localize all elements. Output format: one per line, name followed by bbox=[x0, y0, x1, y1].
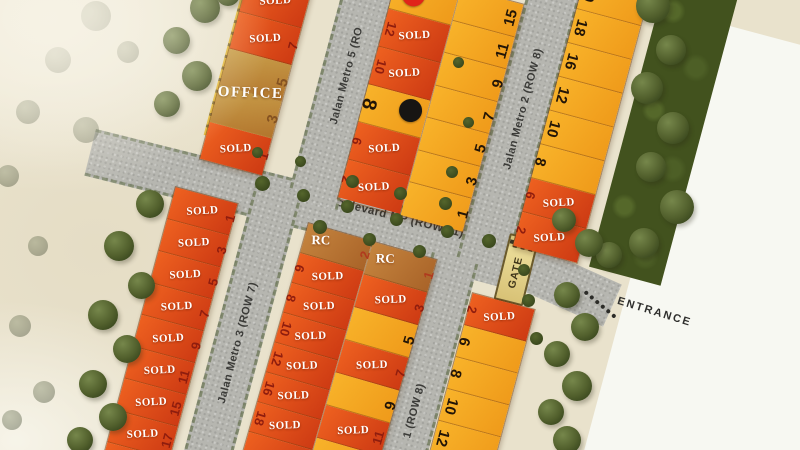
tree bbox=[553, 426, 581, 450]
lot-number: 10 bbox=[442, 396, 461, 416]
sold-label: SOLD bbox=[286, 359, 318, 372]
tree bbox=[575, 229, 603, 257]
lot-number: 9 bbox=[382, 399, 399, 411]
sold-label: SOLD bbox=[368, 142, 401, 156]
lot-number: 1 bbox=[455, 208, 472, 220]
lot-number: 15 bbox=[167, 400, 183, 417]
bush bbox=[453, 57, 464, 68]
street-label-metro-3: Jalan Metro 3 (ROW 7) bbox=[216, 281, 260, 405]
tree bbox=[67, 427, 93, 450]
lot-number: 11 bbox=[493, 41, 512, 60]
bush bbox=[518, 264, 530, 276]
bush bbox=[297, 189, 310, 202]
tree bbox=[538, 399, 564, 425]
lot-number: 18 bbox=[571, 18, 590, 38]
sold-label: SOLD bbox=[337, 424, 369, 437]
bush bbox=[390, 213, 403, 226]
lot-number: 8 bbox=[532, 156, 549, 168]
lot-number: 2 bbox=[514, 225, 528, 235]
sold-label: SOLD bbox=[398, 29, 431, 43]
tree bbox=[0, 165, 19, 187]
lot-number: 7 bbox=[481, 110, 498, 122]
tree bbox=[99, 403, 127, 431]
lot-number: 16 bbox=[562, 51, 581, 71]
lot-number: 8 bbox=[447, 368, 464, 380]
bush bbox=[255, 176, 270, 191]
tree bbox=[9, 315, 31, 337]
lot-number: 12 bbox=[433, 428, 452, 448]
lot-number: 6 bbox=[456, 336, 473, 348]
lot-number: 7 bbox=[197, 309, 211, 319]
lot-number: 12 bbox=[269, 350, 285, 367]
sold-label: SOLD bbox=[169, 268, 202, 282]
bush bbox=[439, 197, 452, 210]
lot-number: 5 bbox=[472, 143, 489, 155]
sold-label: SOLD bbox=[269, 419, 301, 432]
tree bbox=[571, 313, 599, 341]
lot-number: 10 bbox=[372, 58, 388, 75]
sold-label: SOLD bbox=[186, 204, 219, 218]
bush bbox=[341, 200, 354, 213]
bush bbox=[441, 225, 454, 238]
bush bbox=[313, 220, 327, 234]
sold-label: SOLD bbox=[303, 300, 335, 313]
tree bbox=[2, 410, 22, 430]
lot-number: 6 bbox=[350, 136, 364, 146]
lot-number: 3 bbox=[412, 302, 426, 313]
tree bbox=[117, 41, 139, 63]
tree bbox=[629, 228, 659, 258]
bush bbox=[463, 117, 474, 128]
tree bbox=[562, 371, 592, 401]
sold-label: SOLD bbox=[152, 332, 185, 346]
lot-number: 3 bbox=[264, 113, 281, 125]
lot-number: 10 bbox=[544, 119, 563, 139]
bush bbox=[530, 332, 543, 345]
lot-number: 6 bbox=[292, 263, 306, 274]
tree bbox=[656, 35, 686, 65]
tree bbox=[554, 282, 580, 308]
site-plan: Jalan Boulevard MP (ROW 11) Jalan Metro … bbox=[0, 0, 800, 450]
sold-label: SOLD bbox=[126, 427, 159, 441]
lot-number: 5 bbox=[206, 277, 220, 287]
tree bbox=[33, 381, 55, 403]
red-status-dot bbox=[400, 0, 428, 9]
lot-number: 11 bbox=[370, 429, 386, 446]
sold-label: SOLD bbox=[312, 270, 344, 283]
tree bbox=[88, 300, 118, 330]
sold-label: SOLD bbox=[277, 389, 309, 402]
tree bbox=[104, 231, 134, 261]
sold-label: SOLD bbox=[294, 330, 326, 343]
tree bbox=[81, 1, 111, 31]
lot-number: 8 bbox=[358, 96, 380, 112]
sold-label: SOLD bbox=[388, 66, 421, 80]
lot-number: 9 bbox=[489, 78, 506, 90]
tree bbox=[136, 190, 164, 218]
lot-number: 2 bbox=[465, 304, 479, 314]
black-status-dot bbox=[396, 96, 424, 124]
sold-label: SOLD bbox=[135, 395, 168, 409]
bush bbox=[394, 187, 407, 200]
lot-number: 6 bbox=[523, 190, 537, 200]
tree bbox=[28, 236, 48, 256]
lot-number: 8 bbox=[284, 293, 298, 304]
bush bbox=[446, 166, 458, 178]
sold-label: SOLD bbox=[533, 230, 566, 244]
lot-number: 7 bbox=[393, 368, 407, 379]
sold-label: SOLD bbox=[178, 236, 211, 250]
tree bbox=[190, 0, 220, 23]
sold-label: SOLD bbox=[356, 358, 388, 371]
lot-number: 5 bbox=[401, 334, 418, 346]
tree bbox=[182, 61, 212, 91]
lot-number: 17 bbox=[158, 432, 174, 449]
bush bbox=[482, 234, 496, 248]
sold-label: SOLD bbox=[259, 0, 292, 7]
lot-number: 12 bbox=[383, 20, 399, 37]
lot-number: 3 bbox=[463, 175, 480, 187]
lot-number: 1 bbox=[421, 269, 435, 280]
tree bbox=[163, 27, 190, 54]
lot-number: 16 bbox=[261, 380, 277, 397]
lot-number: 12 bbox=[553, 85, 572, 105]
tree bbox=[544, 341, 570, 367]
sold-label: SOLD bbox=[143, 364, 176, 378]
lot-number: 20 bbox=[580, 0, 599, 4]
bush bbox=[413, 245, 426, 258]
tree bbox=[660, 190, 694, 224]
bush bbox=[295, 156, 306, 167]
office-label: OFFICE bbox=[217, 84, 283, 103]
sold-label: SOLD bbox=[220, 142, 253, 156]
lot-number: 11 bbox=[176, 369, 192, 386]
sold-label: SOLD bbox=[161, 300, 194, 314]
tree bbox=[636, 152, 666, 182]
tree bbox=[73, 117, 99, 143]
sold-label: SOLD bbox=[375, 293, 407, 306]
tree bbox=[631, 72, 663, 104]
rc-label: RC bbox=[376, 251, 395, 267]
tree bbox=[154, 91, 180, 117]
lot-number: 3 bbox=[214, 245, 228, 255]
lot-number: 18 bbox=[252, 410, 268, 427]
tree bbox=[45, 47, 71, 73]
bush bbox=[522, 294, 535, 307]
lot-number: 1 bbox=[223, 213, 237, 223]
lot-number: 9 bbox=[189, 341, 203, 351]
sold-label: SOLD bbox=[358, 180, 391, 194]
rc-label: RC bbox=[311, 232, 330, 248]
lot-number: 10 bbox=[278, 320, 294, 337]
lot-number: 15 bbox=[502, 8, 521, 28]
bush bbox=[346, 175, 359, 188]
tree bbox=[552, 208, 576, 232]
tree bbox=[657, 112, 689, 144]
tree bbox=[16, 100, 40, 124]
tree bbox=[79, 370, 107, 398]
tree bbox=[113, 335, 141, 363]
lot-number: 7 bbox=[286, 40, 300, 50]
sold-label: SOLD bbox=[249, 31, 282, 45]
bush bbox=[363, 233, 376, 246]
bush bbox=[252, 147, 263, 158]
sold-label: SOLD bbox=[483, 310, 516, 324]
tree bbox=[128, 272, 155, 299]
street-label-metro-1: 1 (ROW 8) bbox=[401, 382, 427, 439]
